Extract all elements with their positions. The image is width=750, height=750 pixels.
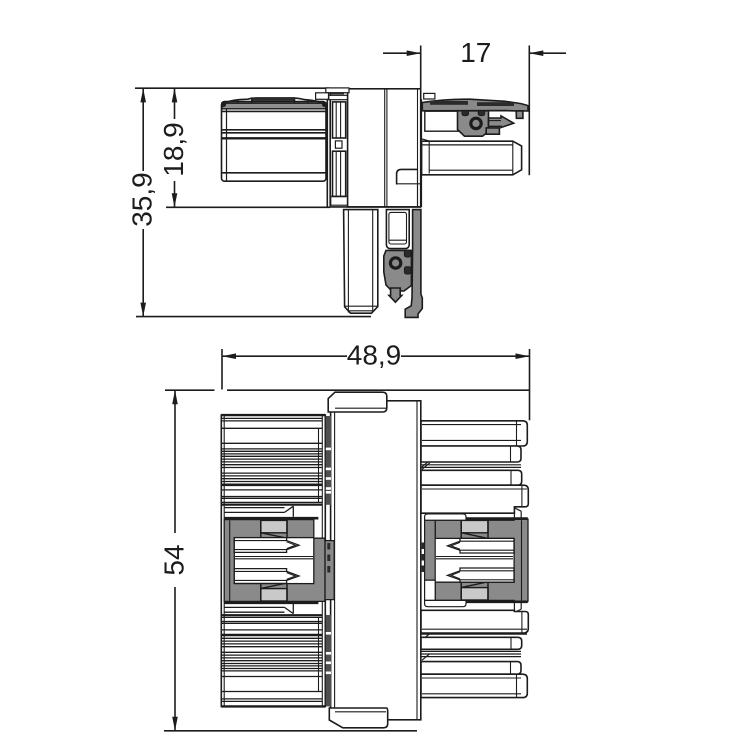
svg-text:18,9: 18,9 [158, 122, 189, 177]
svg-text:54: 54 [158, 544, 189, 575]
svg-text:35,9: 35,9 [127, 172, 158, 227]
svg-text:17: 17 [460, 37, 491, 68]
svg-text:48,9: 48,9 [347, 340, 402, 371]
